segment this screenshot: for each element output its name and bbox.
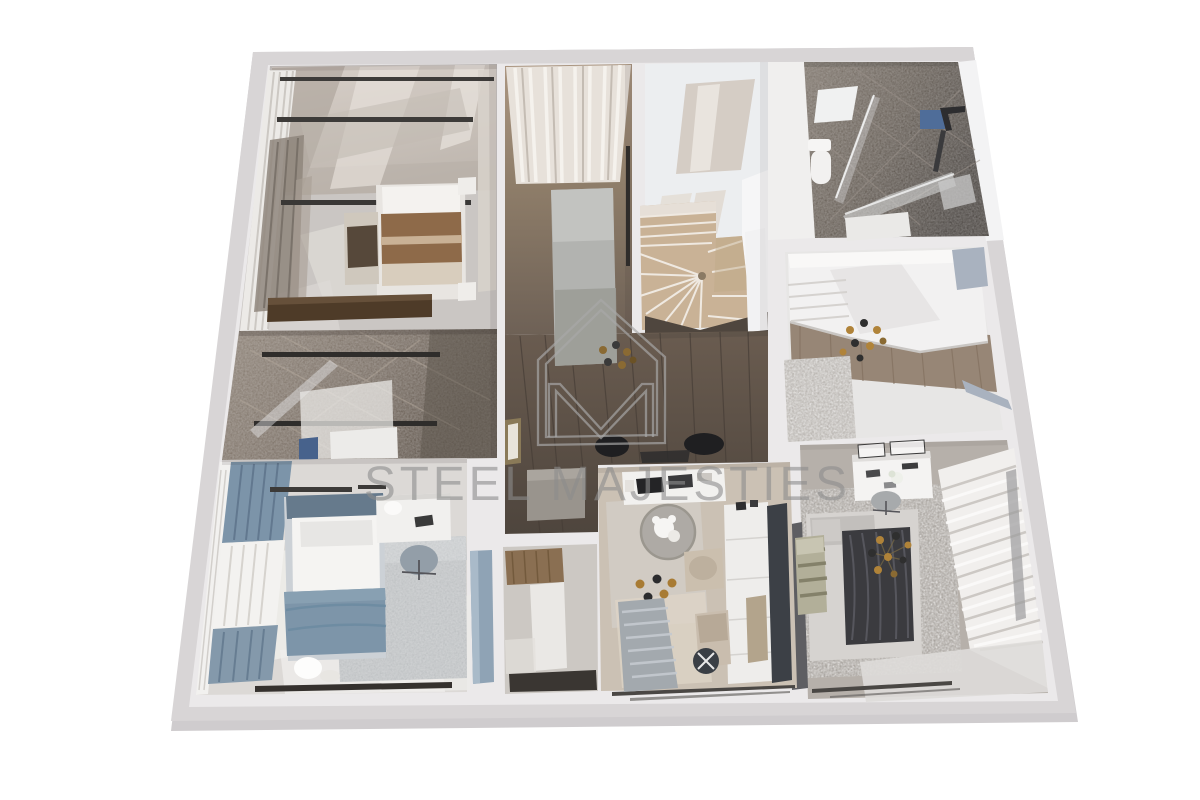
svg-text:STEEL MAJESTIES: STEEL MAJESTIES <box>364 458 851 511</box>
